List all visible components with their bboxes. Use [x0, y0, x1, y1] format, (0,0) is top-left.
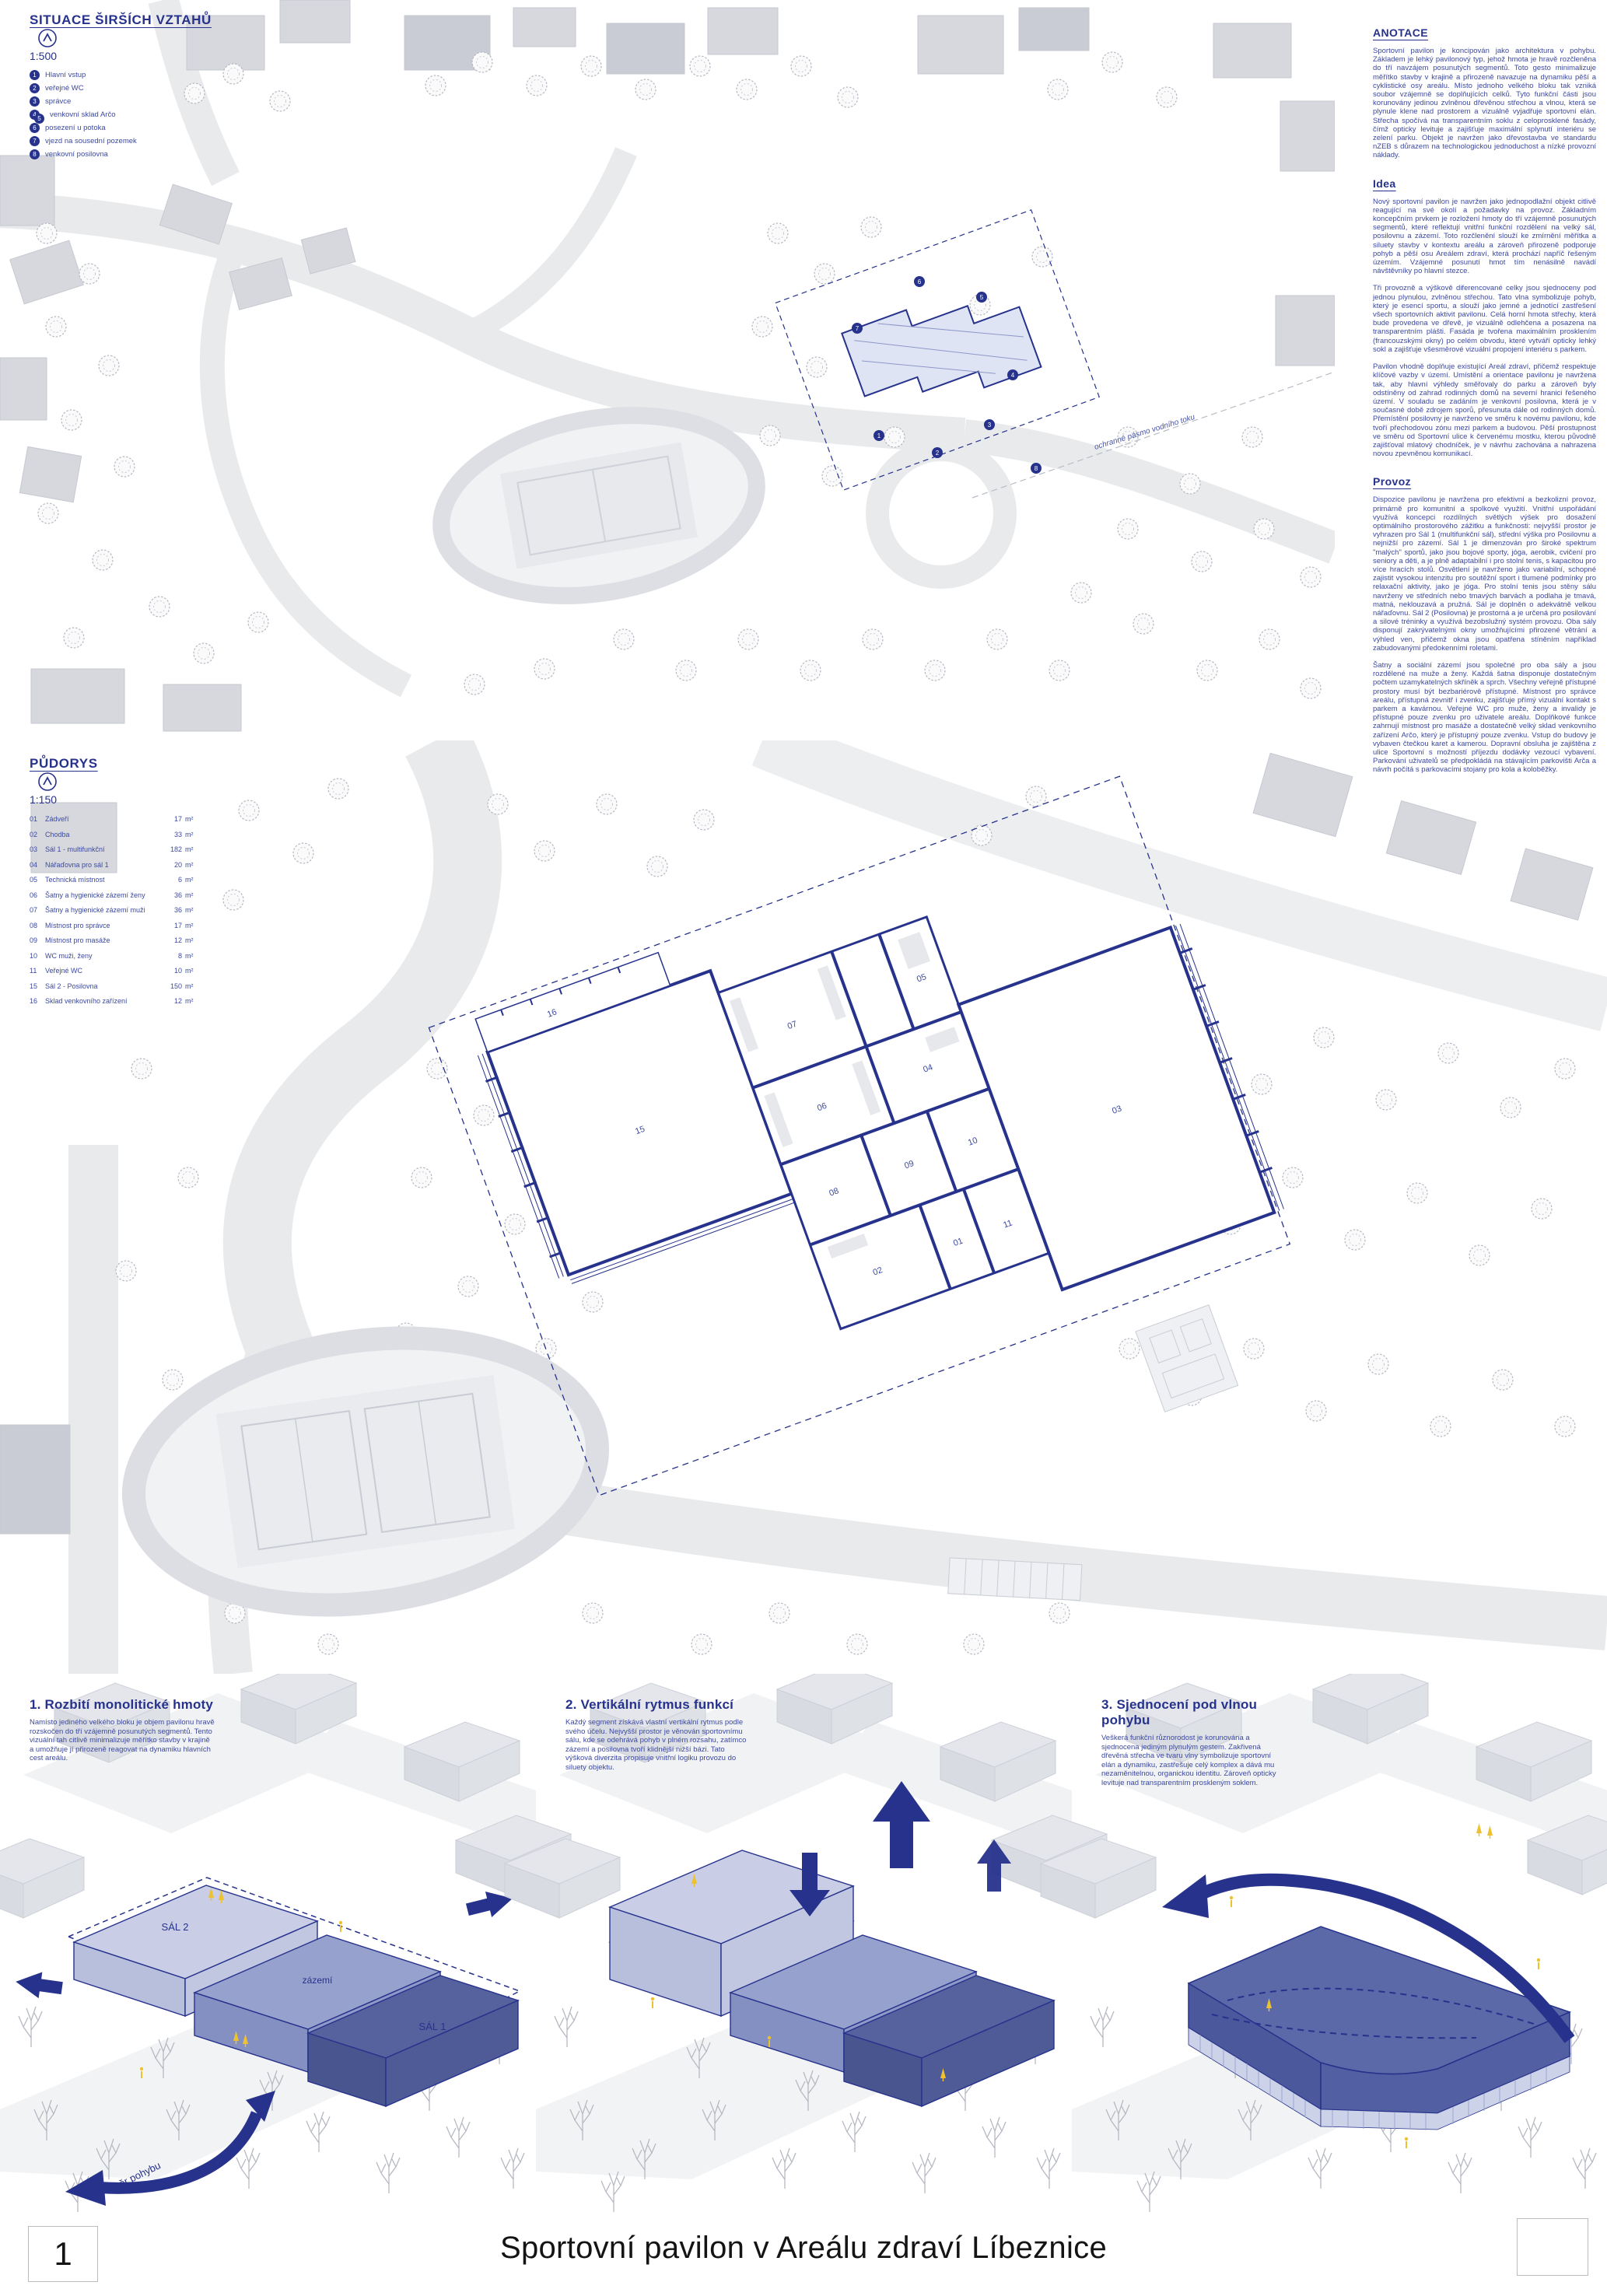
- presentation-board: ochranné pásmo vodního toku 1 2 3 4 5 6 …: [0, 0, 1607, 2296]
- diagram-3-heading: 3. Sjednocení pod vlnou pohybu: [1101, 1697, 1287, 1728]
- idea-heading: Idea: [1373, 177, 1596, 190]
- idea-paragraph-3: Pavilon vhodně doplňuje existující Areál…: [1373, 362, 1596, 458]
- situace-header: SITUACE ŠIRŠÍCH VZTAHŮ 1:500 1Hlavní vst…: [30, 12, 212, 163]
- diagram-1-heading: 1. Rozbití monolitické hmoty: [30, 1697, 215, 1713]
- svg-text:6: 6: [918, 278, 922, 285]
- athletics-oval: [427, 392, 772, 619]
- svg-text:2: 2: [936, 450, 940, 457]
- concept-diagrams: SÁL 2 zázemí SÁL 1 směr pohybu: [0, 1674, 1607, 2218]
- svg-text:8: 8: [1035, 465, 1038, 472]
- legend-item: 8venkovní posilovna: [30, 149, 212, 159]
- pudorys-scale: 1:150: [30, 793, 201, 806]
- diagram-3-text: 3. Sjednocení pod vlnou pohybu Veškerá f…: [1101, 1697, 1287, 1787]
- room-row: 11Veřejné WC10m²: [30, 967, 201, 975]
- svg-text:1: 1: [877, 432, 881, 439]
- legend-item: 6posezení u potoka: [30, 123, 212, 133]
- north-arrow-icon: [37, 28, 58, 48]
- room-row: 15Sál 2 - Posilovna150m²: [30, 982, 201, 990]
- pudorys-title: PŮDORYS: [30, 756, 98, 771]
- idea-paragraph-1: Nový sportovní pavilon je navržen jako j…: [1373, 198, 1596, 276]
- svg-text:7: 7: [856, 325, 860, 332]
- svg-text:5: 5: [980, 294, 984, 301]
- room-row: 05Technická místnost6m²: [30, 876, 201, 884]
- anotace-heading: ANOTACE: [1373, 26, 1596, 39]
- provoz-paragraph-1: Dispozice pavilonu je navržena pro efekt…: [1373, 495, 1596, 653]
- svg-text:3: 3: [988, 422, 992, 429]
- diagram-2-heading: 2. Vertikální rytmus funkcí: [565, 1697, 751, 1713]
- provoz-heading: Provoz: [1373, 475, 1596, 488]
- diagram-2-paragraph: Každý segment získává vlastní vertikální…: [565, 1718, 751, 1772]
- floor-plan-site-map: 15 16 07 06 05 04 08 09 10 02 01 11 03: [0, 740, 1607, 1674]
- outdoor-gym-courts: [1136, 1305, 1238, 1412]
- legend-item: 2veřejné WC: [30, 83, 212, 93]
- legend-item: 3správce: [30, 96, 212, 107]
- situace-scale: 1:500: [30, 50, 212, 62]
- room-row: 02Chodba33m²: [30, 831, 201, 838]
- diagram-1-paragraph: Namísto jediného velkého bloku je objem …: [30, 1718, 215, 1763]
- label-sal2: SÁL 2: [162, 1921, 189, 1933]
- sports-oval: [117, 1310, 615, 1633]
- legend-item: 7vjezd na sousední pozemek: [30, 136, 212, 146]
- protection-line-label: ochranné pásmo vodního toku: [1094, 413, 1196, 452]
- parking: [948, 1558, 1082, 1601]
- pudorys-header: PŮDORYS 1:150 01Zádveří17m² 02Chodba33m²…: [30, 756, 201, 1013]
- room-row: 10WC muži, ženy8m²: [30, 952, 201, 960]
- situace-title: SITUACE ŠIRŠÍCH VZTAHŮ: [30, 12, 212, 27]
- room-schedule: 01Zádveří17m² 02Chodba33m² 03Sál 1 - mul…: [30, 815, 201, 1005]
- label-zazemi: zázemí: [303, 1975, 333, 1986]
- stamp-box: [1517, 2218, 1588, 2276]
- idea-paragraph-2: Tři provozně a výškově diferencované cel…: [1373, 284, 1596, 354]
- trees: [37, 52, 1321, 698]
- room-row: 06Šatny a hygienické zázemí ženy36m²: [30, 891, 201, 899]
- diagram-2-text: 2. Vertikální rytmus funkcí Každý segmen…: [565, 1697, 751, 1772]
- diagram-3-paragraph: Veškerá funkční různorodost je korunován…: [1101, 1734, 1287, 1787]
- annotation-column: ANOTACE Sportovní pavilon je koncipován …: [1373, 26, 1596, 783]
- north-arrow-icon: [37, 772, 58, 792]
- legend-item: 45venkovní sklad Arčo: [30, 110, 212, 120]
- room-row: 04Nářaďovna pro sál 120m²: [30, 861, 201, 869]
- room-row: 09Místnost pro masáže12m²: [30, 936, 201, 944]
- room-row: 01Zádveří17m²: [30, 815, 201, 823]
- board-title: Sportovní pavilon v Areálu zdraví Líbezn…: [0, 2231, 1607, 2266]
- room-row: 16Sklad venkovního zařízení12m²: [30, 997, 201, 1005]
- label-sal1: SÁL 1: [419, 2021, 446, 2032]
- footer: 1 Sportovní pavilon v Areálu zdraví Líbe…: [0, 2223, 1607, 2296]
- legend-item: 1Hlavní vstup: [30, 70, 212, 80]
- room-row: 08Místnost pro správce17m²: [30, 922, 201, 929]
- room-row: 07Šatny a hygienické zázemí muži36m²: [30, 906, 201, 914]
- anotace-paragraph: Sportovní pavilon je koncipován jako arc…: [1373, 47, 1596, 160]
- situace-legend: 1Hlavní vstup 2veřejné WC 3správce 45ven…: [30, 70, 212, 159]
- svg-text:4: 4: [1011, 372, 1015, 379]
- diagram-1-text: 1. Rozbití monolitické hmoty Namísto jed…: [30, 1697, 215, 1763]
- room-row: 03Sál 1 - multifunkční182m²: [30, 845, 201, 853]
